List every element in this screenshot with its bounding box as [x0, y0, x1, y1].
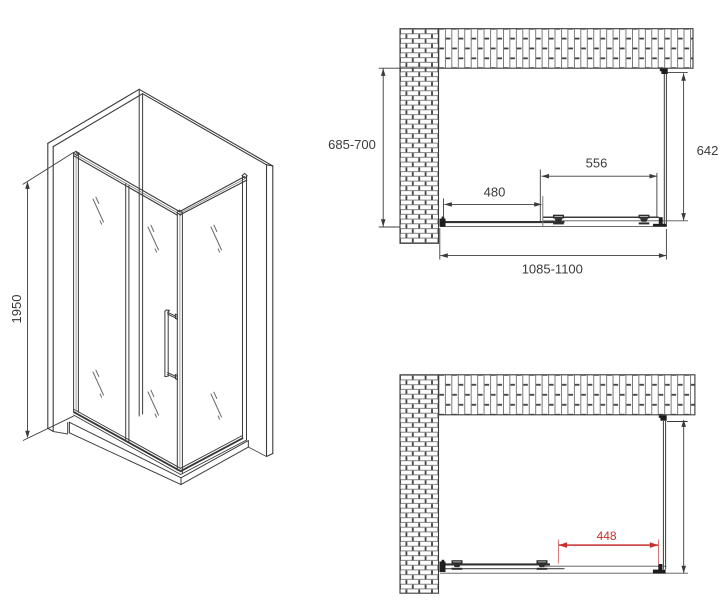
svg-text:448: 448 — [597, 529, 617, 543]
svg-text:1950: 1950 — [9, 295, 24, 324]
svg-text:480: 480 — [484, 185, 506, 200]
svg-text:556: 556 — [586, 156, 608, 171]
svg-text:642: 642 — [697, 143, 719, 158]
svg-text:1085-1100: 1085-1100 — [522, 261, 583, 276]
svg-text:685-700: 685-700 — [328, 137, 376, 152]
